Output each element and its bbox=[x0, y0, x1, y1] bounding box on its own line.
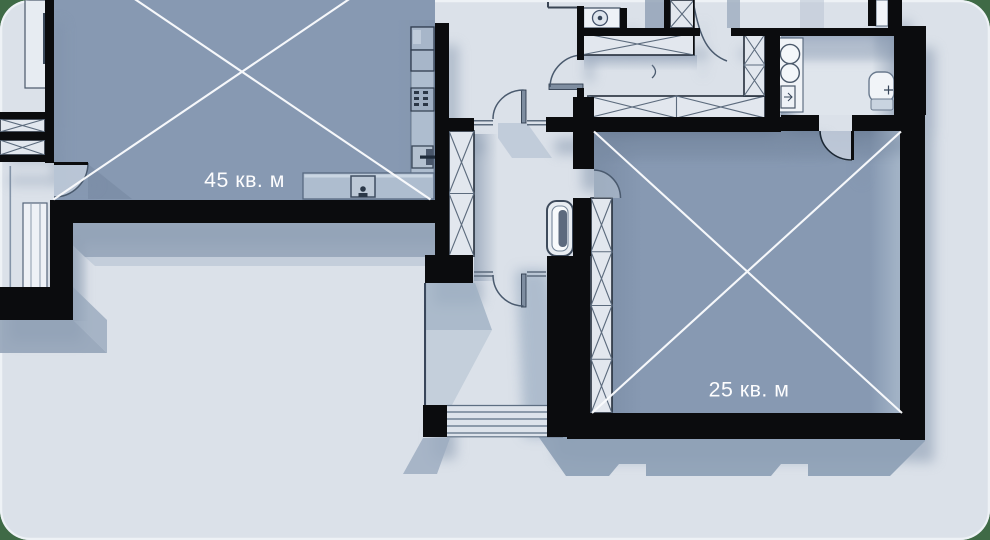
svg-text:45 кв. м: 45 кв. м bbox=[204, 168, 285, 192]
svg-text:25 кв. м: 25 кв. м bbox=[709, 378, 790, 402]
